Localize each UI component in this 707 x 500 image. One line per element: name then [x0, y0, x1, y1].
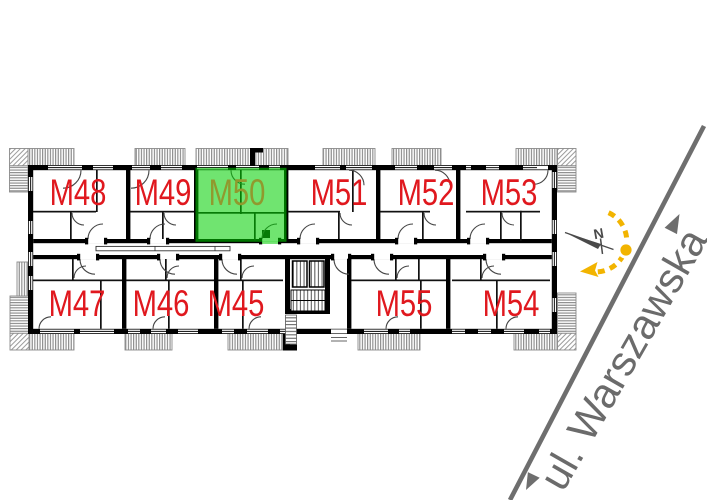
- svg-text:M53: M53: [481, 173, 538, 214]
- svg-text:M55: M55: [376, 284, 433, 325]
- svg-text:M46: M46: [133, 284, 190, 325]
- svg-text:M50: M50: [209, 173, 266, 214]
- svg-text:M45: M45: [208, 284, 265, 325]
- svg-text:M51: M51: [311, 173, 368, 214]
- svg-text:M52: M52: [398, 173, 455, 214]
- svg-text:M49: M49: [135, 173, 192, 214]
- svg-text:M48: M48: [50, 173, 107, 214]
- svg-text:M54: M54: [483, 284, 540, 325]
- svg-text:M47: M47: [49, 284, 106, 325]
